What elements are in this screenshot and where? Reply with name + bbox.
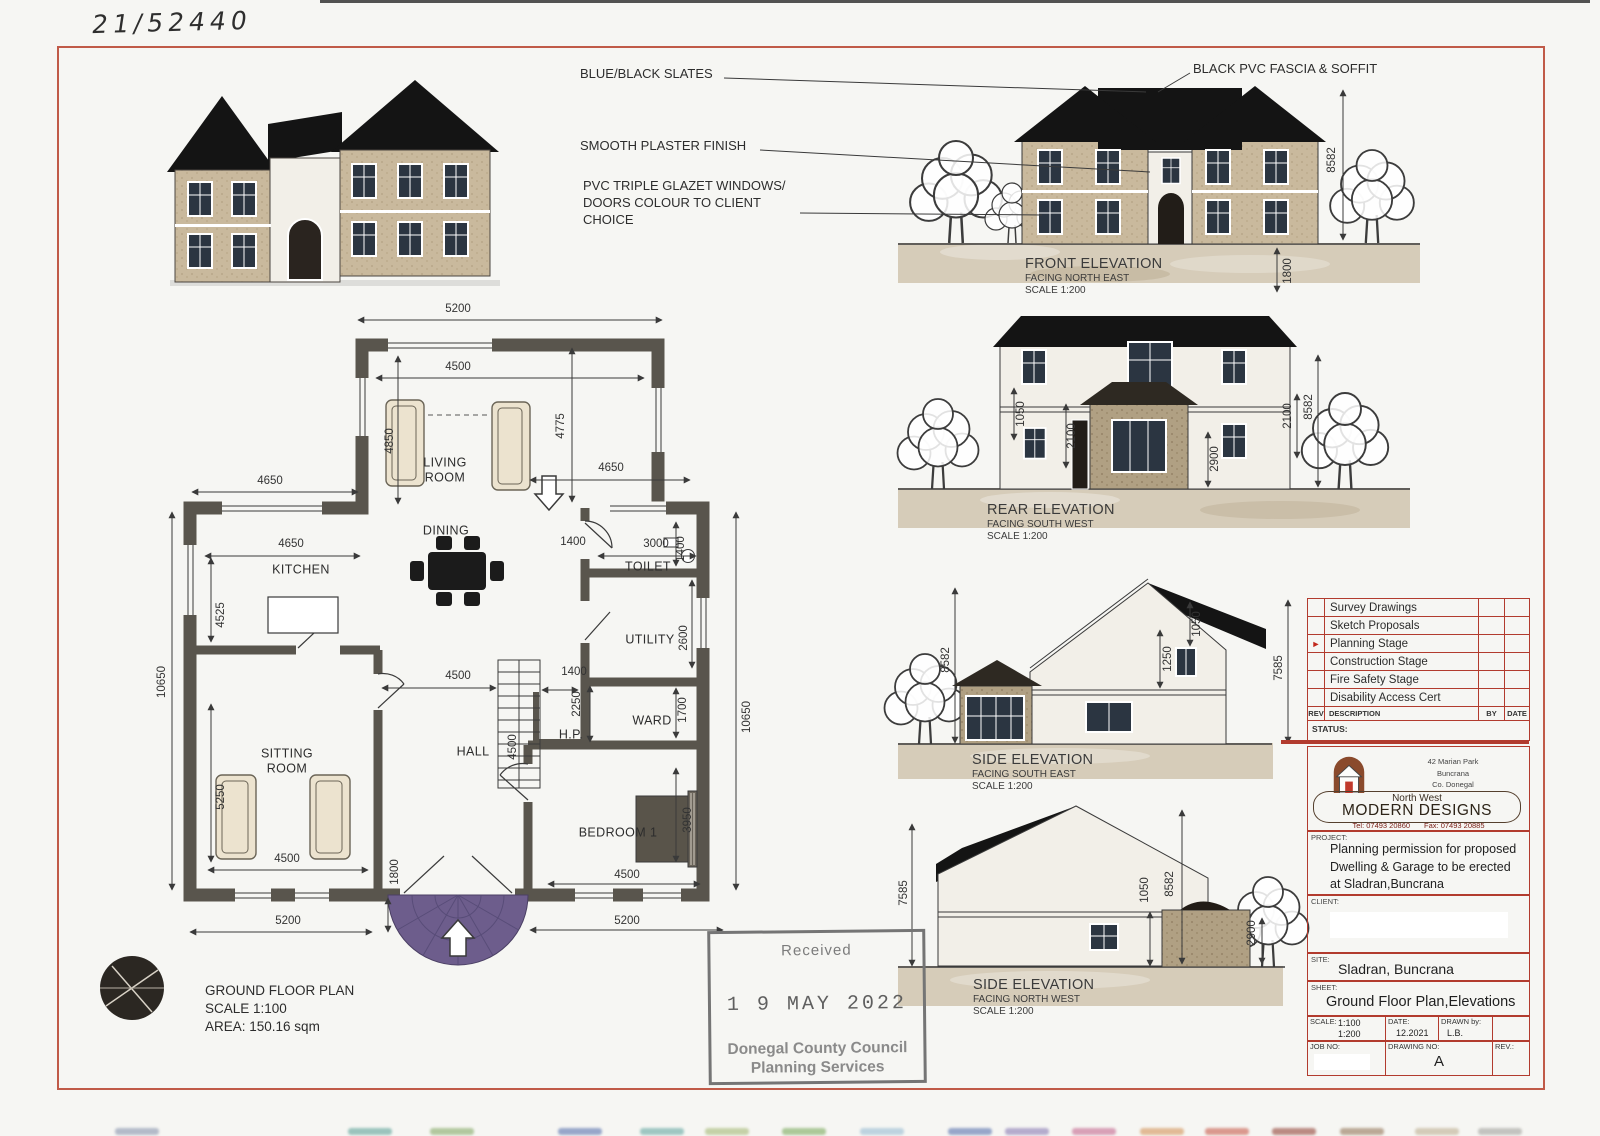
stage-row: Fire Safety Stage xyxy=(1308,671,1529,689)
rev-cell: REV.: xyxy=(1493,1041,1529,1075)
stage-table: Survey DrawingsSketch Proposals►Planning… xyxy=(1307,598,1530,741)
site-box: SITE: Sladran, Buncrana xyxy=(1307,952,1530,982)
stage-label: Disability Access Cert xyxy=(1325,689,1478,706)
drawn-cell: DRAWN by: L.B. xyxy=(1439,1016,1493,1041)
stage-label: Planning Stage xyxy=(1325,635,1478,652)
elevation-dimension: 7585 xyxy=(1273,655,1285,681)
elevation-dimension: 8582 xyxy=(1303,394,1315,420)
plan-dimension: 4775 xyxy=(555,413,567,439)
empty-cell xyxy=(1493,1016,1529,1041)
plan-dimension: 5200 xyxy=(445,303,471,315)
elevation-dimension: 8582 xyxy=(1164,871,1176,897)
side-elevation-se-title: SIDE ELEVATION FACING SOUTH EAST SCALE 1… xyxy=(972,752,1093,792)
rear-elevation-title: REAR ELEVATION FACING SOUTH WEST SCALE 1… xyxy=(987,502,1115,542)
date-cell: DATE: 12.2021 xyxy=(1386,1016,1439,1041)
elevation-dimension: 2900 xyxy=(1246,920,1258,946)
stamp-org: Donegal County Council xyxy=(711,1039,923,1059)
scanned-drawing-sheet: 21/52440 xyxy=(0,0,1600,1136)
plan-dimension: 4500 xyxy=(274,853,300,865)
room-label: BEDROOM 1 xyxy=(579,826,658,841)
plan-dimension: 4500 xyxy=(614,869,640,881)
plan-dimension: 4650 xyxy=(278,538,304,550)
elevation-dimension: 1800 xyxy=(1282,258,1294,284)
room-label: LIVING ROOM xyxy=(423,455,466,485)
project-description: Planning permission for proposed Dwellin… xyxy=(1330,841,1516,894)
side-elevation-nw-title: SIDE ELEVATION FACING NORTH WEST SCALE 1… xyxy=(973,977,1094,1017)
plan-dimension: 10650 xyxy=(741,701,753,733)
plan-dimension: 4850 xyxy=(384,428,396,454)
plan-dimension: 5200 xyxy=(614,915,640,927)
callout-plaster: SMOOTH PLASTER FINISH xyxy=(580,138,746,155)
stage-row: Sketch Proposals xyxy=(1308,617,1529,635)
elevation-dimension: 7585 xyxy=(898,880,910,906)
site-name: Sladran, Buncrana xyxy=(1338,961,1454,977)
stage-label: Fire Safety Stage xyxy=(1325,671,1478,688)
elevation-dimension: 1050 xyxy=(1139,877,1151,903)
plan-dimension: 4650 xyxy=(257,475,283,487)
stage-label: Construction Stage xyxy=(1325,653,1478,670)
stage-row: Construction Stage xyxy=(1308,653,1529,671)
plan-dimension: 4500 xyxy=(445,361,471,373)
elevation-dimension: 8582 xyxy=(1326,147,1338,173)
revision-header-row: REV DESCRIPTION BY DATE xyxy=(1308,707,1529,721)
scale-cell: SCALE: 1:100 1:200 xyxy=(1308,1016,1386,1041)
callout-slates: BLUE/BLACK SLATES xyxy=(580,66,713,83)
drawing-no-cell: DRAWING NO: A xyxy=(1386,1041,1493,1075)
client-redaction xyxy=(1330,912,1508,938)
plan-dimension: 1800 xyxy=(389,859,401,885)
plan-dimension: 5200 xyxy=(275,915,301,927)
room-label: HALL xyxy=(457,745,490,760)
callout-fascia: BLACK PVC FASCIA & SOFFIT xyxy=(1193,61,1377,78)
plan-dimension: 4500 xyxy=(507,734,519,760)
front-elevation-title: FRONT ELEVATION FACING NORTH EAST SCALE … xyxy=(1025,256,1162,296)
room-label: SITTING ROOM xyxy=(261,746,313,776)
stamp-received-text: Received xyxy=(710,941,922,960)
plan-dimension: 4500 xyxy=(445,670,471,682)
room-label: WARD xyxy=(632,714,671,729)
job-no-cell: JOB NO: xyxy=(1308,1041,1386,1075)
plan-dimension: 1400 xyxy=(675,536,687,562)
firm-name-oval: North West MODERN DESIGNS xyxy=(1313,791,1521,823)
stamp-date: 1 9 MAY 2022 xyxy=(711,992,923,1017)
plan-dimension: 10650 xyxy=(156,666,168,698)
room-label: DINING xyxy=(423,524,469,539)
status-row: STATUS: xyxy=(1308,721,1529,740)
stage-row: Survey Drawings xyxy=(1308,599,1529,617)
titleblock-divider xyxy=(1281,740,1529,744)
plan-dimension: 3000 xyxy=(643,538,669,550)
elevation-dimension: 1250 xyxy=(1162,646,1174,672)
room-label: H.P. xyxy=(559,728,583,743)
stage-row: Disability Access Cert xyxy=(1308,689,1529,707)
elevation-dimension: 1050 xyxy=(1191,611,1203,637)
stage-label: Survey Drawings xyxy=(1325,599,1478,616)
plan-dimension: 4525 xyxy=(215,602,227,628)
stamp-dept: Planning Services xyxy=(712,1058,924,1078)
elevation-dimension: 2900 xyxy=(1209,446,1221,472)
firm-contact: Tel: 07493 20860 Fax: 07493 20885 xyxy=(1308,821,1529,830)
firm-address: 42 Marian Park Buncrana Co. Donegal xyxy=(1408,756,1498,791)
project-box: PROJECT: Planning permission for propose… xyxy=(1307,830,1530,896)
plan-dimension: 2600 xyxy=(678,625,690,651)
active-stage-marker: ► xyxy=(1308,635,1325,652)
floor-plan-title: GROUND FLOOR PLAN SCALE 1:100 AREA: 150.… xyxy=(205,982,354,1037)
room-label: UTILITY xyxy=(625,633,674,648)
client-box: CLIENT: xyxy=(1307,894,1530,954)
elevation-dimension: 8582 xyxy=(940,647,952,673)
stage-rows: Survey DrawingsSketch Proposals►Planning… xyxy=(1308,599,1529,707)
plan-dimension: 3950 xyxy=(682,807,694,833)
callout-windows: PVC TRIPLE GLAZET WINDOWS/ DOORS COLOUR … xyxy=(583,178,803,229)
plan-dimension: 1400 xyxy=(560,536,586,548)
titleblock-meta-row1: SCALE: 1:100 1:200 DATE: 12.2021 DRAWN b… xyxy=(1307,1015,1530,1042)
drawing-number: A xyxy=(1386,1053,1492,1070)
plan-dimension: 5250 xyxy=(215,784,227,810)
elevation-dimension: 1050 xyxy=(1015,401,1027,427)
plan-dimension: 2250 xyxy=(571,691,583,717)
elevation-dimension: 2100 xyxy=(1066,423,1078,449)
plan-dimension: 1400 xyxy=(561,666,587,678)
room-label: TOILET xyxy=(625,560,671,575)
firm-panel: 42 Marian Park Buncrana Co. Donegal Nort… xyxy=(1307,746,1530,832)
sheet-name: Ground Floor Plan,Elevations xyxy=(1326,994,1515,1010)
plan-dimension: 1700 xyxy=(677,697,689,723)
stage-row: ►Planning Stage xyxy=(1308,635,1529,653)
stage-label: Sketch Proposals xyxy=(1325,617,1478,634)
sheet-box: SHEET: Ground Floor Plan,Elevations xyxy=(1307,980,1530,1017)
titleblock-meta-row2: JOB NO: DRAWING NO: A REV.: xyxy=(1307,1040,1530,1076)
job-no-redaction xyxy=(1314,1054,1370,1070)
plan-dimension: 4650 xyxy=(598,462,624,474)
room-label: KITCHEN xyxy=(272,563,330,578)
elevation-dimension: 2100 xyxy=(1282,403,1294,429)
received-stamp: Received 1 9 MAY 2022 Donegal County Cou… xyxy=(707,929,927,1085)
